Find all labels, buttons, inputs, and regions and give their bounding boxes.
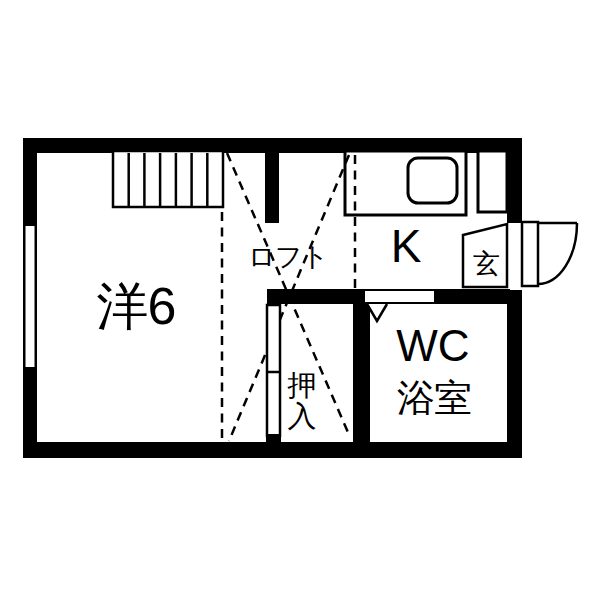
staircase bbox=[113, 151, 223, 207]
room-label-wc: WC bbox=[396, 324, 469, 368]
wall-stub-kitchen-divider bbox=[265, 145, 279, 223]
window-left-wall bbox=[25, 225, 36, 368]
closet-label-char-2: 入 bbox=[288, 402, 317, 431]
room-label-loft: ロフト bbox=[248, 244, 328, 271]
closet-label-char-1: 押 bbox=[288, 371, 317, 400]
wall-closet-wc-divider bbox=[353, 289, 370, 443]
floorplan-page: 洋6 ロフト K 玄 押 入 WC 浴室 bbox=[0, 0, 600, 600]
entrance-door-swing-arc bbox=[538, 223, 577, 284]
kitchen-sink bbox=[408, 158, 457, 203]
wall-right-lower bbox=[507, 290, 522, 458]
room-label-closet: 押 入 bbox=[288, 371, 317, 431]
room-label-bath: 浴室 bbox=[397, 379, 471, 417]
room-label-entrance: 玄 bbox=[473, 251, 499, 278]
entrance-door-leaf bbox=[522, 222, 538, 286]
room-label-western: 洋6 bbox=[97, 280, 176, 332]
wall-closet-door-end bbox=[266, 434, 281, 443]
bathroom-door-panel bbox=[364, 290, 435, 303]
room-label-kitchen: K bbox=[391, 223, 422, 269]
wall-right-upper bbox=[507, 138, 522, 223]
floorplan-drawing bbox=[0, 0, 600, 600]
closet-sliding-door bbox=[267, 305, 280, 436]
kitchen-appliance-space bbox=[478, 151, 507, 212]
wall-bottom bbox=[23, 442, 522, 458]
